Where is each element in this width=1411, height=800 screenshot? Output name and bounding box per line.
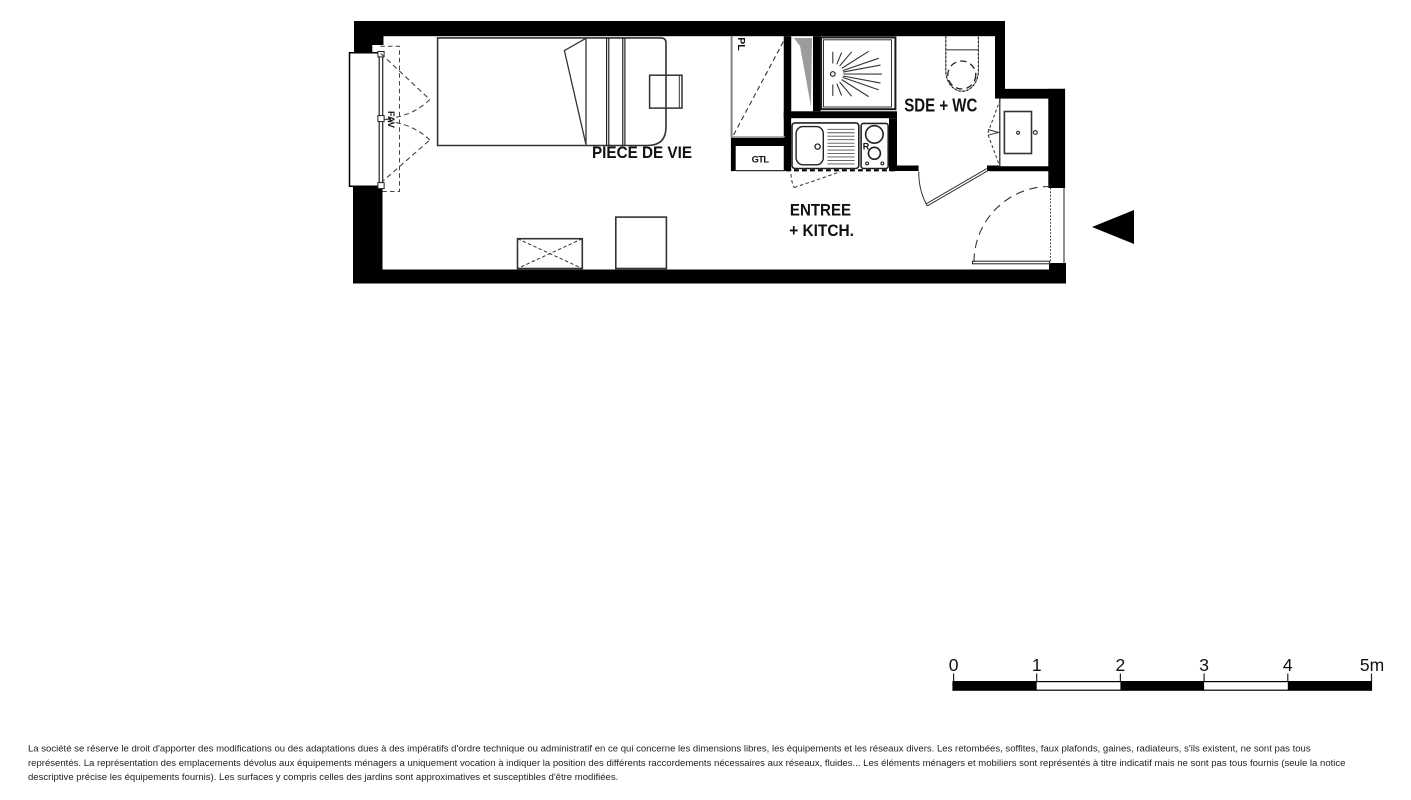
svg-text:2: 2 bbox=[1116, 655, 1126, 675]
svg-text:GTL: GTL bbox=[752, 154, 770, 164]
svg-text:PL: PL bbox=[735, 37, 747, 51]
svg-text:4: 4 bbox=[1283, 655, 1293, 675]
svg-text:FAV: FAV bbox=[385, 111, 396, 129]
svg-text:descriptive précise les équipe: descriptive précise les équipements four… bbox=[28, 772, 618, 783]
svg-text:3: 3 bbox=[1199, 655, 1209, 675]
svg-text:5m: 5m bbox=[1360, 655, 1384, 675]
svg-text:0: 0 bbox=[949, 655, 959, 675]
svg-text:PIECE DE VIE: PIECE DE VIE bbox=[592, 143, 692, 162]
svg-text:La société se réserve le droit: La société se réserve le droit d'apporte… bbox=[28, 744, 1311, 755]
svg-text:1: 1 bbox=[1032, 655, 1042, 675]
svg-text:SDE + WC: SDE + WC bbox=[904, 96, 977, 116]
svg-text:R: R bbox=[863, 142, 870, 152]
svg-text:+ KITCH.: + KITCH. bbox=[789, 221, 854, 240]
svg-text:ENTREE: ENTREE bbox=[790, 200, 851, 219]
svg-text:représentés. La représentation: représentés. La représentation des empla… bbox=[28, 758, 1346, 769]
